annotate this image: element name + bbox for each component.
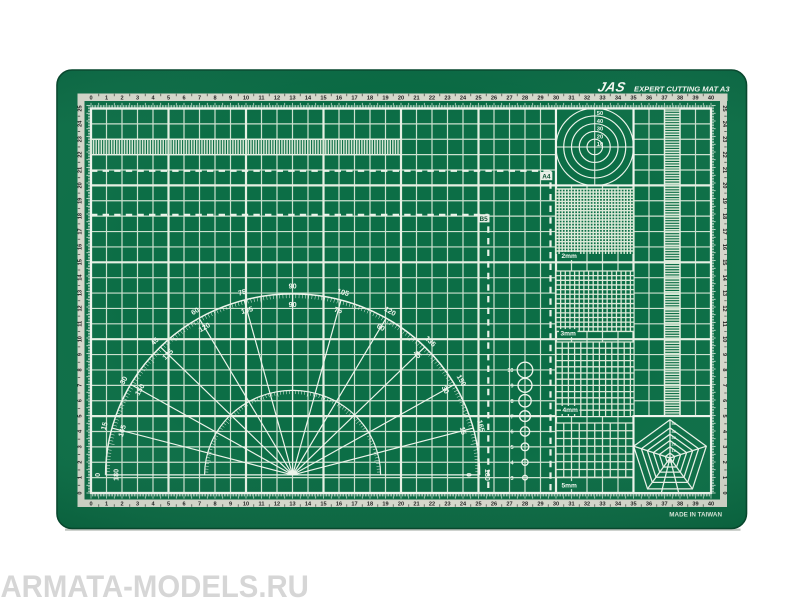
svg-text:ARMATA-MODELS.RU: ARMATA-MODELS.RU	[1, 570, 309, 600]
